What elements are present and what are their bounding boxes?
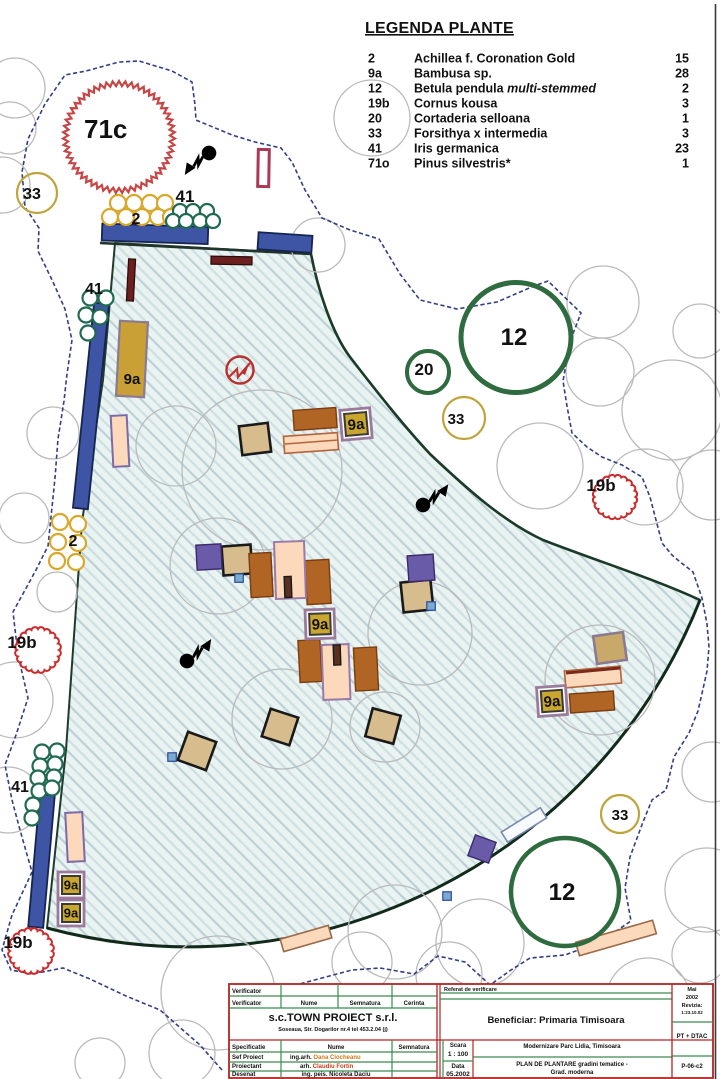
svg-text:Specificatie: Specificatie [232,1045,266,1051]
svg-text:Referat de verificare: Referat de verificare [444,987,497,993]
svg-text:Desenat: Desenat [232,1072,255,1078]
svg-text:Nume: Nume [301,1001,318,1007]
svg-text:Sef Proiect: Sef Proiect [232,1055,263,1061]
svg-text:Forsithya x intermedia: Forsithya x intermedia [414,127,548,141]
svg-text:ing.arh. Oana Ciocheanu: ing.arh. Oana Ciocheanu [290,1055,361,1061]
svg-text:41: 41 [176,187,195,206]
svg-text:33: 33 [23,186,41,203]
svg-text:1: 1 [682,157,689,171]
svg-text:19b: 19b [368,97,390,111]
svg-text:LEGENDA PLANTE: LEGENDA PLANTE [365,20,514,37]
svg-text:2002: 2002 [686,995,698,1001]
svg-text:2: 2 [69,533,78,550]
svg-text:1: 1 [682,112,689,126]
svg-text:Mai: Mai [687,987,697,993]
svg-text:Iris germanica: Iris germanica [414,142,500,156]
svg-text:2: 2 [368,52,375,66]
svg-text:P-06-c2: P-06-c2 [681,1064,703,1070]
svg-text:Betula pendula multi-stemmed: Betula pendula multi-stemmed [414,82,596,96]
svg-text:19b: 19b [586,476,615,495]
svg-text:1 : 100: 1 : 100 [448,1051,469,1058]
svg-text:PT + DTAC: PT + DTAC [677,1034,708,1040]
svg-text:arh. Claudiu Fortin: arh. Claudiu Fortin [300,1064,354,1070]
svg-text:PLAN DE PLANTARE gradini tema: PLAN DE PLANTARE gradini tematice - [516,1062,628,1068]
svg-text:Cornus kousa: Cornus kousa [414,97,498,111]
svg-text:33: 33 [612,807,629,824]
svg-text:s.c.TOWN PROIECT s.r.l.: s.c.TOWN PROIECT s.r.l. [269,1012,398,1024]
svg-text:15: 15 [675,52,689,66]
svg-text:41: 41 [368,142,382,156]
svg-text:Revizia:: Revizia: [682,1003,703,1009]
svg-text:9a: 9a [311,616,329,634]
svg-text:Proiectant: Proiectant [232,1064,261,1070]
svg-text:Cortaderia selloana: Cortaderia selloana [414,112,531,126]
svg-text:20: 20 [368,112,382,126]
svg-text:28: 28 [675,67,689,81]
svg-text:Beneficiar: Primaria Timisoara: Beneficiar: Primaria Timisoara [487,1015,625,1026]
svg-text:Scara: Scara [450,1043,467,1049]
svg-text:1:23.10.02: 1:23.10.02 [681,1010,703,1015]
svg-text:12: 12 [549,879,576,906]
svg-text:33: 33 [368,127,382,141]
svg-text:9a: 9a [124,371,141,388]
svg-text:Semnatura: Semnatura [349,1001,381,1007]
svg-text:Grad. moderna: Grad. moderna [551,1070,594,1076]
svg-text:41: 41 [85,281,103,298]
svg-text:12: 12 [501,324,528,351]
svg-text:2: 2 [682,82,689,96]
svg-text:2: 2 [132,211,141,228]
svg-text:Semnatura: Semnatura [398,1045,430,1051]
svg-text:Soseaua, Str. Dogarilor nr.4 t: Soseaua, Str. Dogarilor nr.4 tel 453.2.0… [278,1027,388,1033]
svg-text:Cerinta: Cerinta [404,1001,425,1007]
svg-text:Verificator: Verificator [232,1001,262,1007]
svg-text:9a: 9a [543,693,561,711]
svg-text:Pinus silvestris*: Pinus silvestris* [414,157,511,171]
svg-text:Verificator: Verificator [232,989,262,995]
svg-text:71c: 71c [84,114,127,144]
svg-text:9a: 9a [347,416,366,434]
svg-text:19b: 19b [7,633,36,652]
svg-text:Nume: Nume [328,1045,345,1051]
svg-text:9a: 9a [64,906,79,921]
svg-text:3: 3 [682,97,689,111]
svg-text:Bambusa sp.: Bambusa sp. [414,67,492,81]
svg-text:41: 41 [11,779,29,796]
svg-text:05.2002: 05.2002 [446,1071,470,1078]
svg-text:12: 12 [368,82,382,96]
svg-text:9a: 9a [368,67,383,81]
svg-text:20: 20 [415,360,434,379]
svg-text:71o: 71o [368,157,390,171]
svg-text:Modernizare Parc Lidia, Timiso: Modernizare Parc Lidia, Timisoara [523,1044,621,1050]
svg-text:ing. peis. Nicoleta Daciu: ing. peis. Nicoleta Daciu [301,1072,370,1078]
svg-text:Data: Data [451,1064,465,1070]
svg-text:23: 23 [675,142,689,156]
svg-text:Achillea f. Coronation Gold: Achillea f. Coronation Gold [414,52,575,66]
svg-text:9a: 9a [64,878,79,893]
svg-text:3: 3 [682,127,689,141]
svg-text:33: 33 [448,411,465,428]
svg-text:19b: 19b [3,933,32,952]
